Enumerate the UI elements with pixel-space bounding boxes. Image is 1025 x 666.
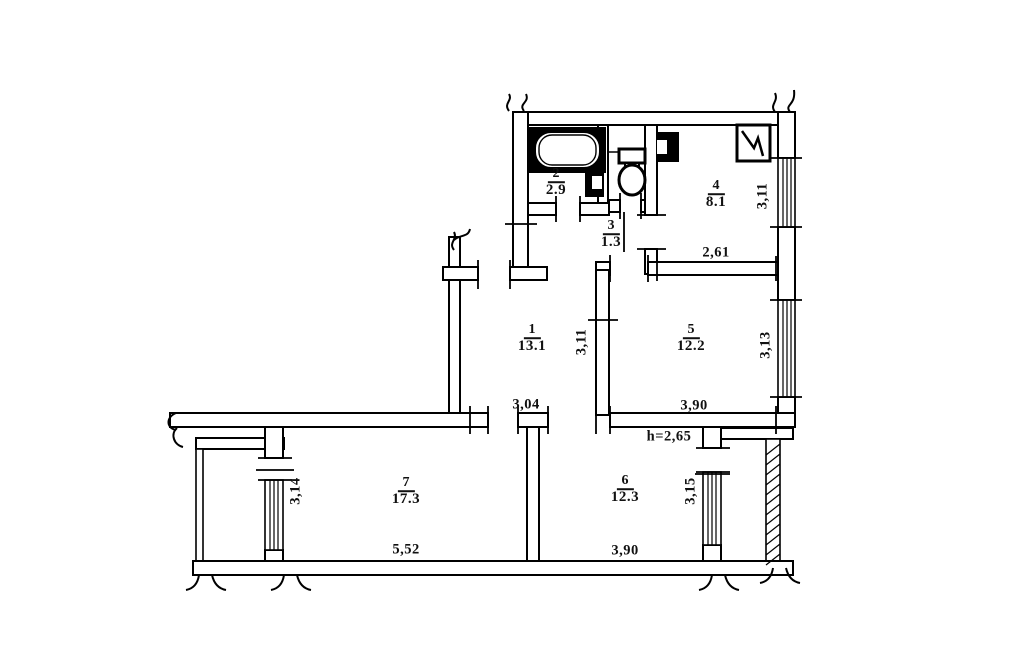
room-7-area: 17.3 <box>392 492 420 507</box>
room-2-label: 2 2.9 <box>546 165 566 199</box>
window-room5 <box>770 300 802 397</box>
room-5-number: 5 <box>683 323 700 339</box>
toilet-icon <box>619 149 645 195</box>
window-kitchen <box>770 158 802 227</box>
room-1-number: 1 <box>524 323 541 339</box>
dim-room6-width: 3,90 <box>611 544 638 559</box>
room-7-label: 7 17.3 <box>392 474 420 508</box>
room-4-label: 4 8.1 <box>706 177 726 211</box>
dim-room6-depth: 3,15 <box>684 477 699 504</box>
dim-room5-depth: 3,13 <box>759 331 774 358</box>
dim-room7-width: 5,52 <box>392 543 419 558</box>
room-1-area: 13.1 <box>518 339 546 354</box>
dim-kitchen-depth: 3,11 <box>756 183 771 210</box>
room-7-number: 7 <box>398 476 415 492</box>
dim-room1-width: 3,04 <box>512 398 539 413</box>
vent-shaft-icon-2 <box>657 132 679 162</box>
dim-room5-width: 3,90 <box>680 399 707 414</box>
room-4-area: 8.1 <box>706 195 726 210</box>
room-1-label: 1 13.1 <box>518 321 546 355</box>
room-6-number: 6 <box>617 474 634 490</box>
floorplan-drawing <box>0 0 1025 666</box>
bathtub-icon <box>529 127 606 173</box>
room-5-area: 12.2 <box>677 339 705 354</box>
dim-ceiling-height: h=2,65 <box>647 430 692 445</box>
vent-shaft-icon <box>585 169 604 197</box>
stove-icon <box>737 125 770 161</box>
room-3-label: 3 1.3 <box>601 217 621 251</box>
window-room6-balcony <box>695 472 730 545</box>
room-4-number: 4 <box>708 179 725 195</box>
dim-room7-depth: 3,14 <box>289 477 304 504</box>
dim-hall-depth: 3,11 <box>575 329 590 356</box>
room-6-area: 12.3 <box>611 490 639 505</box>
room-6-label: 6 12.3 <box>611 472 639 506</box>
room-5-label: 5 12.2 <box>677 321 705 355</box>
room-3-area: 1.3 <box>601 235 621 250</box>
room-2-number: 2 <box>548 167 565 183</box>
room-3-number: 3 <box>603 219 620 235</box>
room-2-area: 2.9 <box>546 183 566 198</box>
floorplan-page: 1 13.1 2 2.9 3 1.3 4 8.1 5 12.2 6 12.3 7… <box>0 0 1025 666</box>
dim-kitchen-width: 2,61 <box>702 246 729 261</box>
